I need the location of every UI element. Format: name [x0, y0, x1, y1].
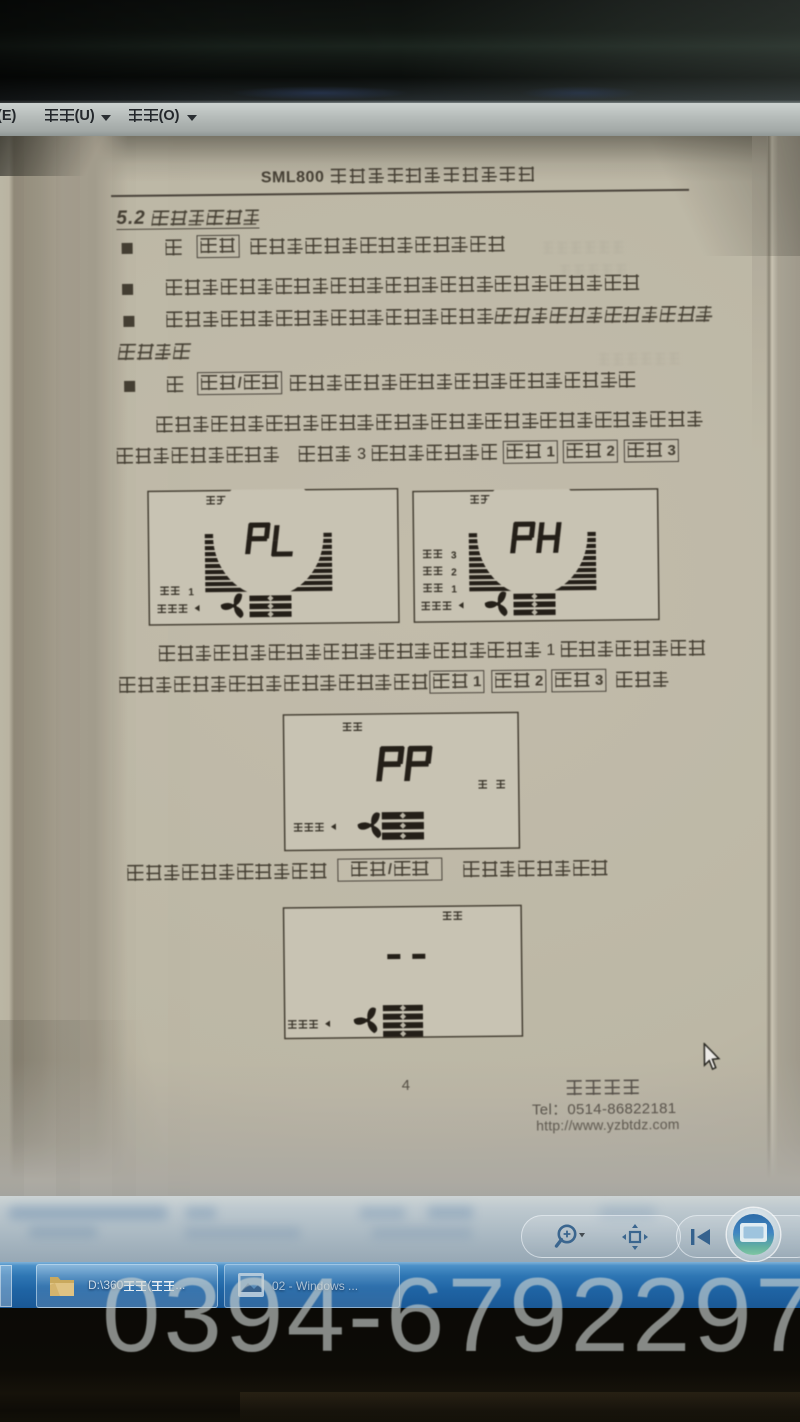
svg-text:1: 1: [188, 587, 194, 598]
svg-text:1: 1: [451, 584, 457, 595]
svg-text:2: 2: [451, 567, 457, 578]
svg-text:3: 3: [451, 550, 457, 561]
